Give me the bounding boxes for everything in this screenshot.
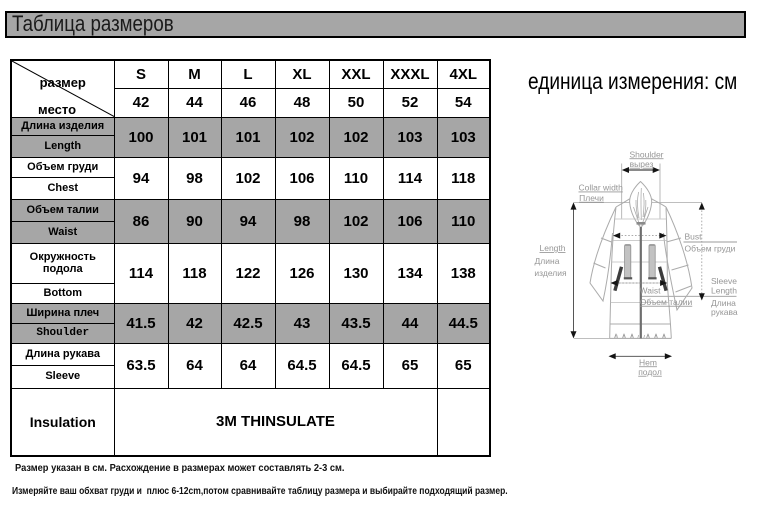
svg-text:рукава: рукава — [711, 307, 738, 317]
svg-text:изделия: изделия — [534, 268, 567, 278]
svg-text:Length: Length — [540, 243, 566, 253]
svg-text:Объем талии: Объем талии — [640, 297, 693, 307]
svg-text:Shoulder: Shoulder — [629, 149, 663, 159]
svg-text:Length: Length — [711, 286, 737, 296]
svg-text:вырез: вырез — [630, 159, 654, 169]
svg-text:Hem: Hem — [639, 357, 657, 367]
svg-text:Collar width: Collar width — [578, 183, 623, 193]
svg-text:Sleeve: Sleeve — [711, 276, 737, 286]
svg-text:Bust: Bust — [685, 232, 703, 242]
svg-text:Длина: Длина — [535, 256, 560, 266]
svg-text:Плечи: Плечи — [579, 193, 604, 203]
svg-text:подол: подол — [638, 367, 662, 377]
svg-text:Waist: Waist — [640, 286, 662, 296]
svg-text:Объем груди: Объем груди — [685, 244, 736, 254]
